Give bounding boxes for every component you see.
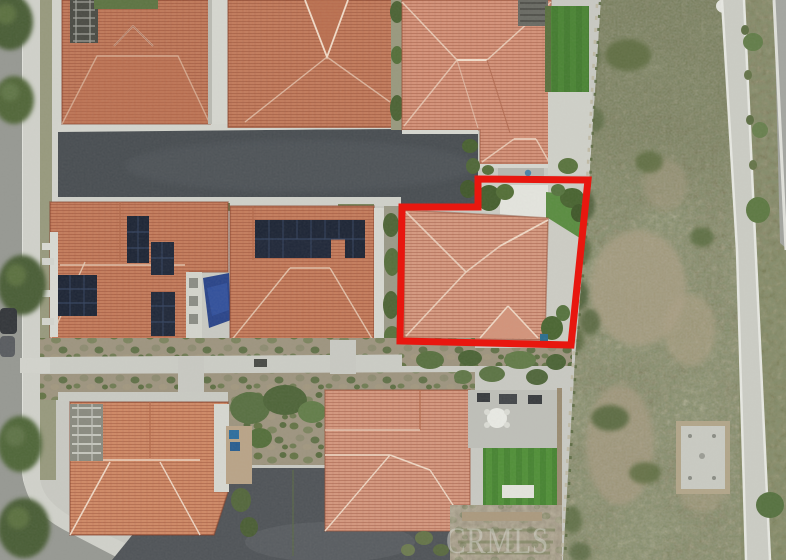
svg-text:CRMLS: CRMLS	[446, 521, 549, 560]
